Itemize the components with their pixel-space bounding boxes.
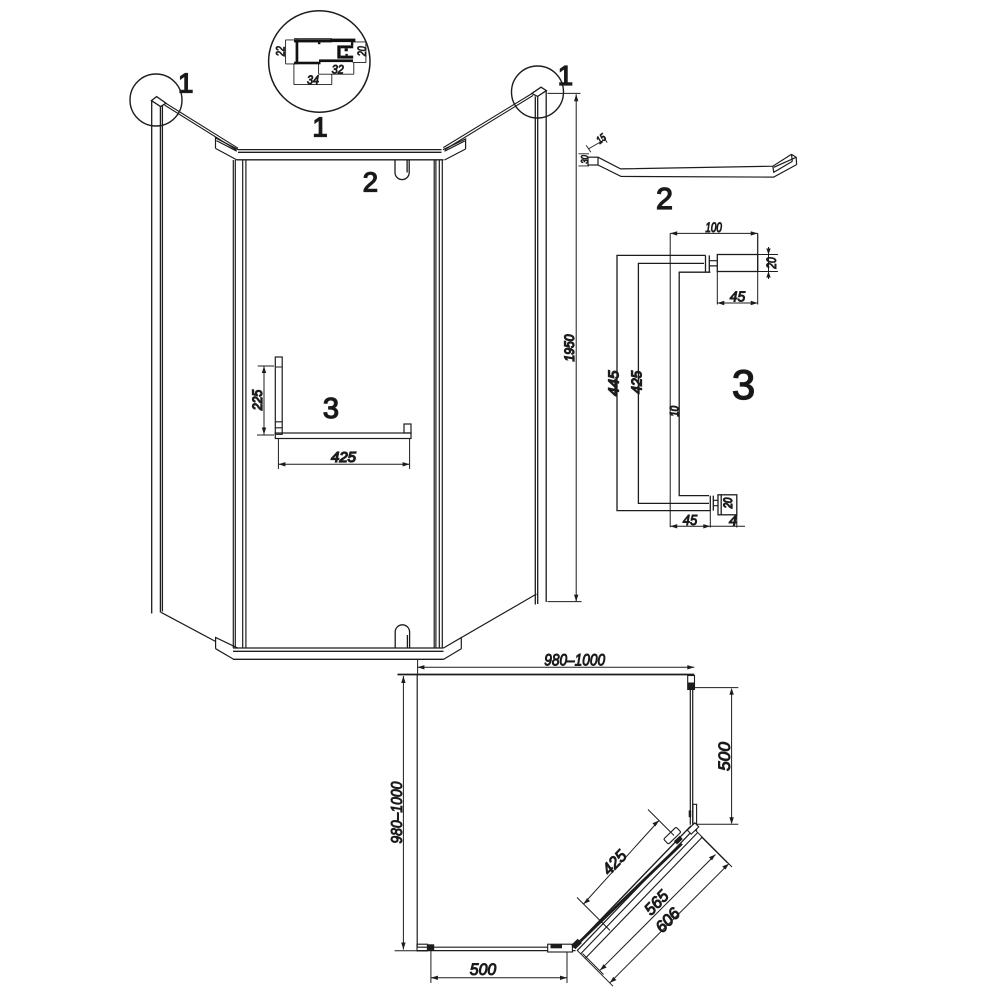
svg-text:45: 45 — [683, 513, 698, 529]
svg-text:1: 1 — [312, 112, 327, 143]
svg-text:425: 425 — [331, 449, 357, 466]
svg-text:225: 225 — [250, 389, 265, 411]
svg-text:2: 2 — [656, 182, 673, 216]
svg-text:980–1000: 980–1000 — [544, 652, 606, 670]
svg-text:980–1000: 980–1000 — [389, 782, 406, 844]
svg-text:425: 425 — [599, 846, 631, 879]
svg-text:4: 4 — [729, 513, 737, 530]
svg-text:10: 10 — [670, 405, 682, 416]
svg-text:1: 1 — [558, 60, 573, 91]
svg-text:2: 2 — [363, 167, 378, 198]
svg-text:3: 3 — [732, 361, 755, 408]
svg-text:500: 500 — [470, 961, 497, 979]
svg-text:20: 20 — [764, 257, 779, 270]
svg-text:32: 32 — [332, 62, 344, 76]
svg-text:20: 20 — [723, 497, 735, 509]
svg-text:20: 20 — [357, 46, 369, 57]
svg-text:3: 3 — [323, 393, 339, 425]
svg-text:425: 425 — [628, 370, 645, 394]
svg-text:34: 34 — [307, 73, 319, 87]
svg-text:500: 500 — [716, 741, 734, 771]
svg-text:100: 100 — [705, 220, 722, 235]
svg-text:1950: 1950 — [561, 334, 577, 361]
svg-text:445: 445 — [606, 370, 623, 396]
svg-text:22: 22 — [276, 46, 288, 57]
svg-text:1: 1 — [178, 68, 194, 99]
svg-text:30: 30 — [580, 155, 591, 164]
svg-text:45: 45 — [730, 289, 746, 305]
